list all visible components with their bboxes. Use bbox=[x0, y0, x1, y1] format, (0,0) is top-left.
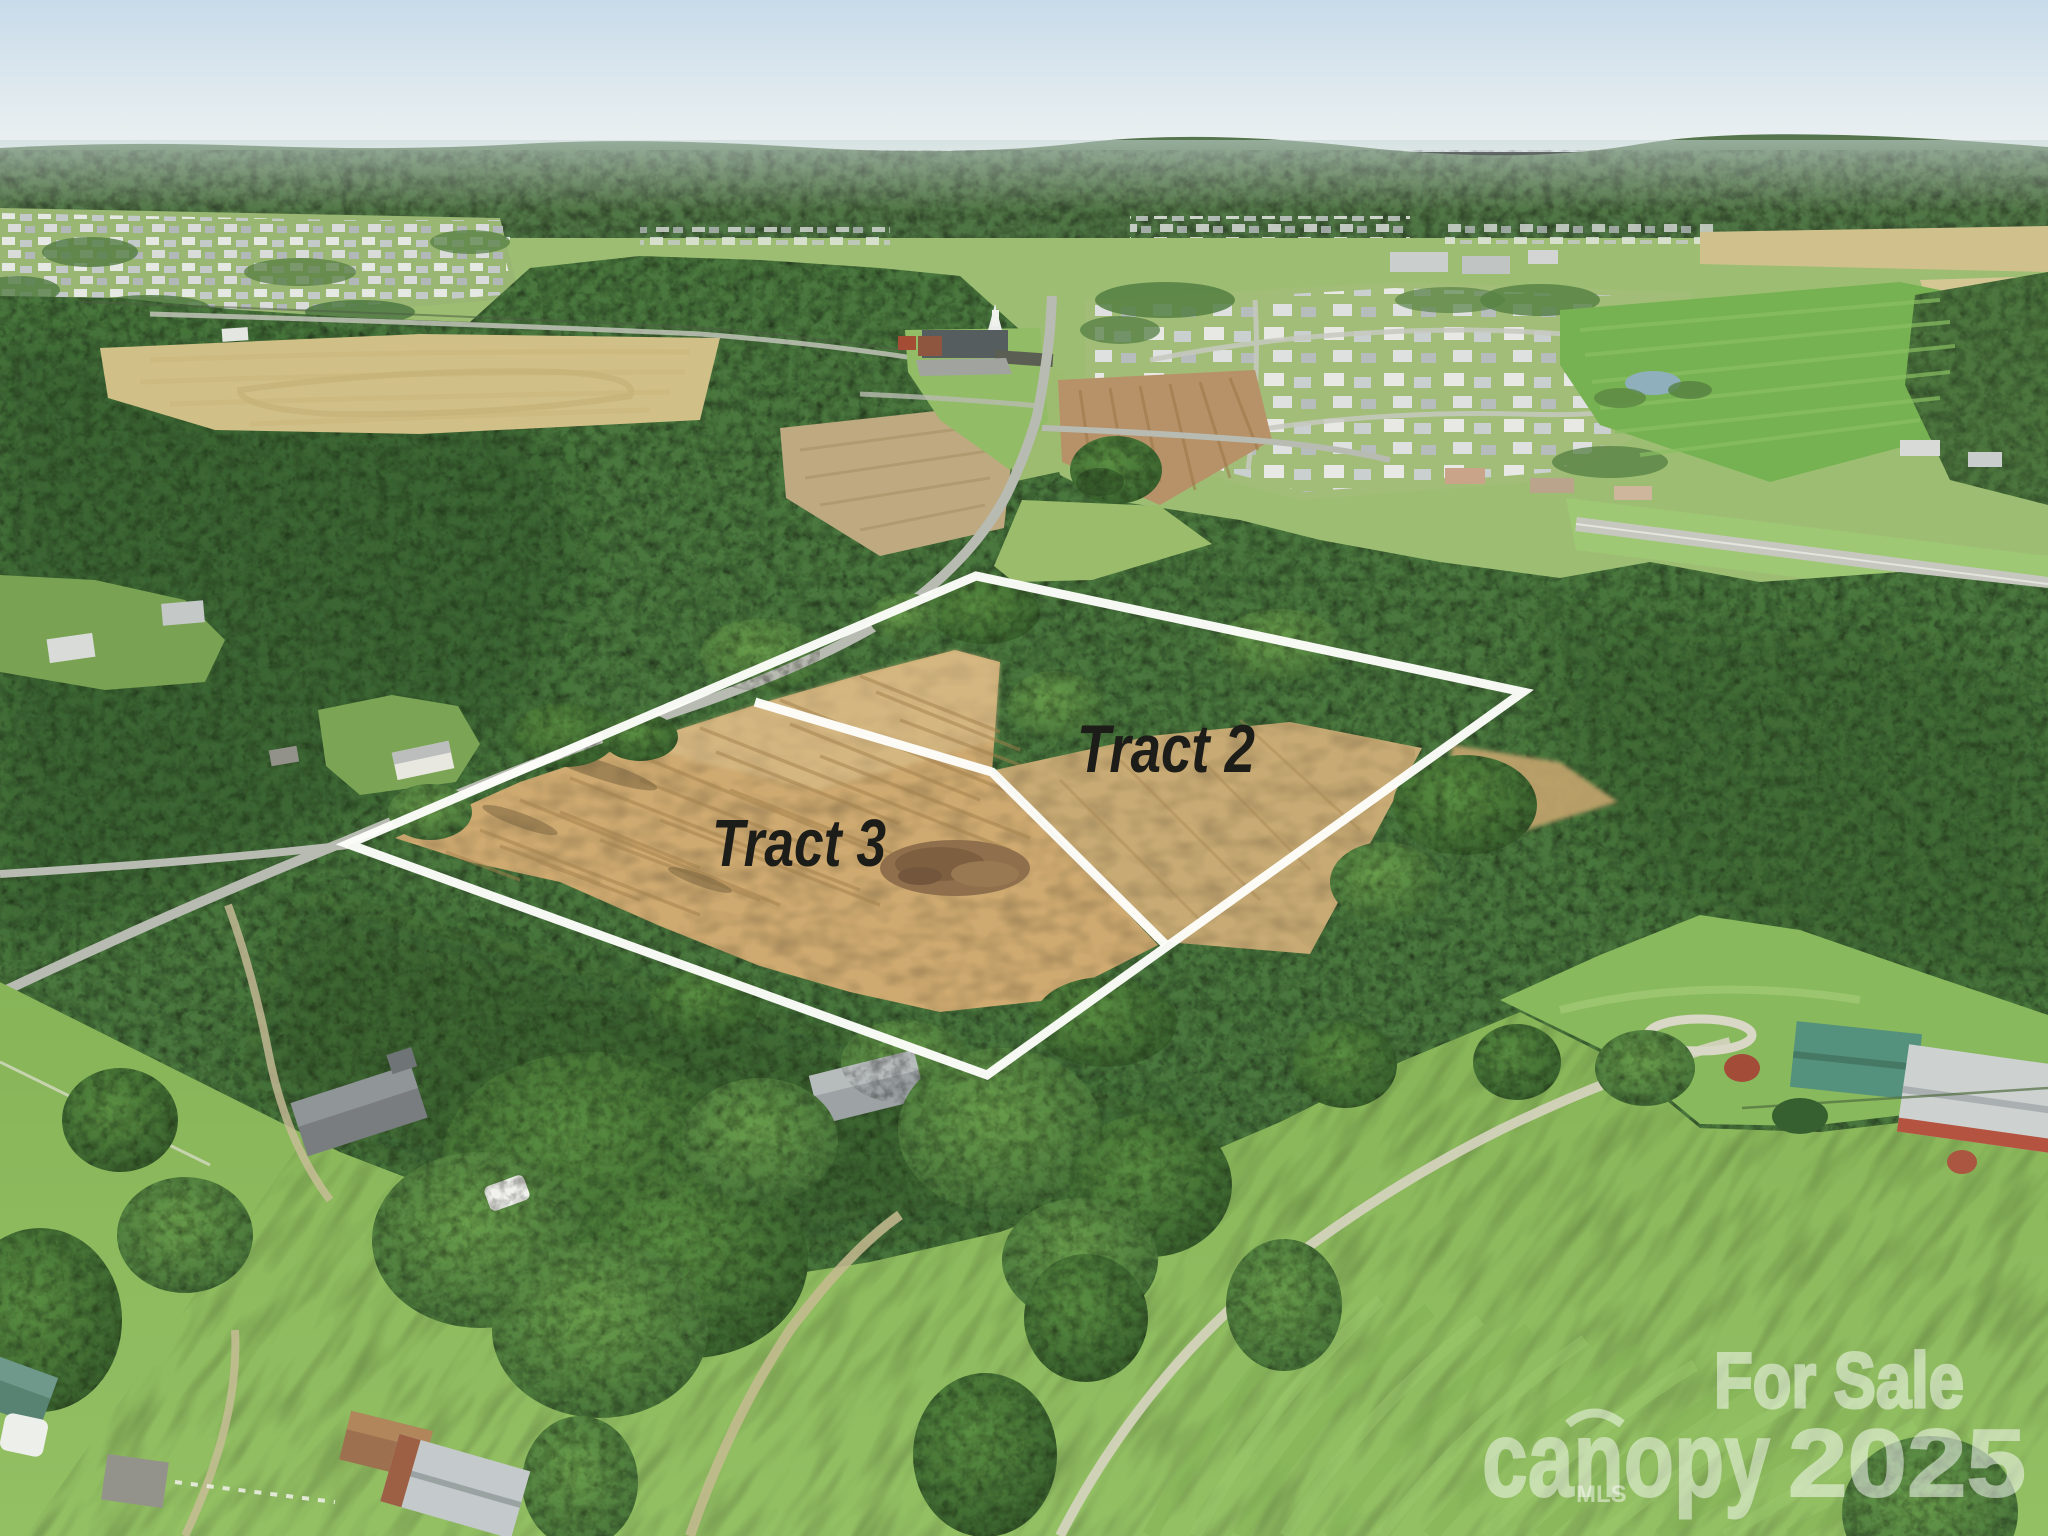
svg-text:2025: 2025 bbox=[1788, 1410, 2026, 1517]
svg-text:MLS: MLS bbox=[1576, 1481, 1627, 1508]
